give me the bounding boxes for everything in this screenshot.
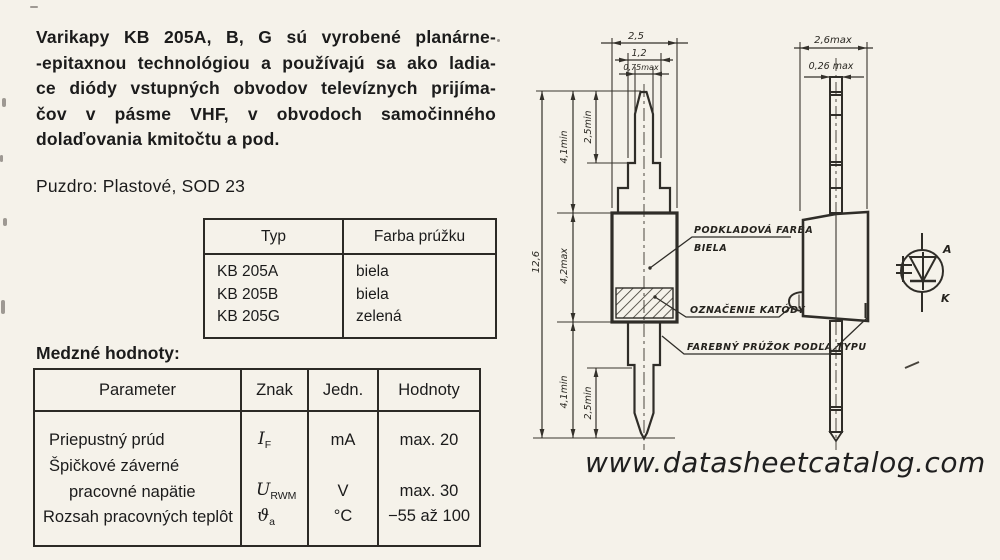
table-cell: Špičkové záverné: [49, 457, 179, 476]
table-cell: °C: [309, 507, 377, 526]
dim-lead-bottom-label: 4,1min: [559, 375, 570, 408]
table-cell: max. 30: [379, 482, 479, 501]
color-column: biela biela zelená: [344, 255, 495, 337]
dim-lead-mid-width-label: 1,2: [631, 48, 646, 59]
column-header-znak: Znak: [242, 370, 309, 410]
scan-artifact: [1, 300, 5, 314]
table-cell: max. 20: [379, 431, 479, 450]
scan-artifact: [30, 6, 38, 8]
dim-body-width-label: 2,5: [628, 31, 644, 42]
scan-artifact: [497, 39, 500, 42]
scan-artifact: [3, 218, 7, 226]
intro-line: čov v pásme VHF, v obvodoch samočinného: [36, 102, 496, 128]
symbol-base: U: [256, 480, 270, 500]
table-cell: KB 205A: [205, 261, 342, 284]
label-base-color-line2: BIELA: [694, 243, 727, 254]
symbol-base: I: [258, 429, 265, 449]
table-cell: mA: [309, 431, 377, 450]
dim-lead-tip-bottom-label: 2,5min: [583, 386, 594, 419]
table-cell: URWM: [256, 480, 296, 502]
dim-lead-top-label: 4,1min: [559, 130, 570, 163]
type-color-table: Typ Farba prúžku KB 205A KB 205B KB 205G…: [203, 218, 497, 339]
intro-line: ce diódy vstupných obvodov televíznych p…: [36, 76, 496, 102]
package-line: Puzdro: Plastové, SOD 23: [36, 176, 245, 197]
limits-title: Medzné hodnoty:: [36, 343, 180, 364]
dim-total-length-label: 12,6: [531, 251, 542, 273]
dim-lead-tip-top-label: 2,5min: [583, 110, 594, 143]
type-table-header-row: Typ Farba prúžku: [205, 220, 495, 255]
limits-table: Parameter Znak Jedn. Hodnoty Priepustný …: [33, 368, 481, 547]
watermark: www.datasheetcatalog.com: [585, 446, 986, 479]
intro-line: -epitaxnou technológiou a používajú sa a…: [36, 51, 496, 77]
column-header-typ: Typ: [205, 220, 344, 253]
symbol-column: IF URWM ϑa: [242, 412, 309, 545]
dim-side-width-label: 2,6max: [814, 35, 852, 46]
table-cell: V: [309, 482, 377, 501]
side-view: 2,6max 0,26 max: [789, 35, 873, 450]
symbol-subscript: a: [269, 516, 275, 528]
front-view: 2,5 1,2 0,75max 12,6 4,1min 2,5min 4,2ma…: [531, 31, 867, 450]
dim-lead-thickness-label: 0,26 max: [809, 61, 854, 72]
dim-lead-tip-width-label: 0,75max: [623, 63, 659, 72]
table-cell: Rozsah pracovných teplôt: [43, 508, 233, 527]
scan-artifact: [905, 362, 919, 368]
parameter-column: Priepustný prúd Špičkové záverné pracovn…: [35, 412, 242, 545]
column-header-hodnoty: Hodnoty: [379, 370, 479, 410]
cathode-label: K: [941, 292, 951, 305]
intro-line: Varikapy KB 205A, B, G sú vyrobené planá…: [36, 25, 496, 51]
limits-table-header-row: Parameter Znak Jedn. Hodnoty: [35, 370, 479, 412]
side-top-lead: [830, 77, 842, 213]
column-header-jedn: Jedn.: [309, 370, 379, 410]
datasheet-page: Varikapy KB 205A, B, G sú vyrobené planá…: [0, 0, 1000, 560]
type-column: KB 205A KB 205B KB 205G: [205, 255, 344, 337]
scan-artifact: [0, 155, 3, 162]
type-table-body: KB 205A KB 205B KB 205G biela biela zele…: [205, 255, 495, 337]
column-header-farba: Farba prúžku: [344, 220, 495, 253]
anode-label: A: [942, 243, 952, 256]
unit-column: mA V °C: [309, 412, 379, 545]
dim-body-length-label: 4,2max: [559, 248, 570, 284]
limits-table-body: Priepustný prúd Špičkové záverné pracovn…: [35, 412, 479, 545]
table-cell: pracovné napätie: [69, 483, 196, 502]
table-cell: Priepustný prúd: [49, 431, 165, 450]
column-header-parameter: Parameter: [35, 370, 242, 410]
symbol-base: ϑ: [257, 506, 269, 526]
table-cell: −55 až 100: [379, 507, 479, 526]
symbol-subscript: RWM: [270, 490, 296, 502]
intro-paragraph: Varikapy KB 205A, B, G sú vyrobené planá…: [36, 25, 496, 153]
table-cell: KB 205B: [205, 284, 342, 307]
varicap-symbol: A K: [896, 233, 952, 368]
scan-artifact: [2, 98, 6, 107]
table-cell: IF: [258, 429, 271, 451]
symbol-subscript: F: [265, 439, 271, 451]
table-cell: zelená: [344, 306, 495, 329]
table-cell: biela: [344, 261, 495, 284]
label-cathode-mark: OZNAČENIE KATÓDY: [690, 304, 806, 316]
table-cell: biela: [344, 284, 495, 307]
table-cell: KB 205G: [205, 306, 342, 329]
intro-line: dolaďovania kmitočtu a pod.: [36, 127, 496, 153]
label-base-color-line1: PODKLADOVÁ FARBA: [694, 224, 813, 236]
value-column: max. 20 max. 30 −55 až 100: [379, 412, 479, 545]
table-cell: ϑa: [257, 506, 275, 528]
